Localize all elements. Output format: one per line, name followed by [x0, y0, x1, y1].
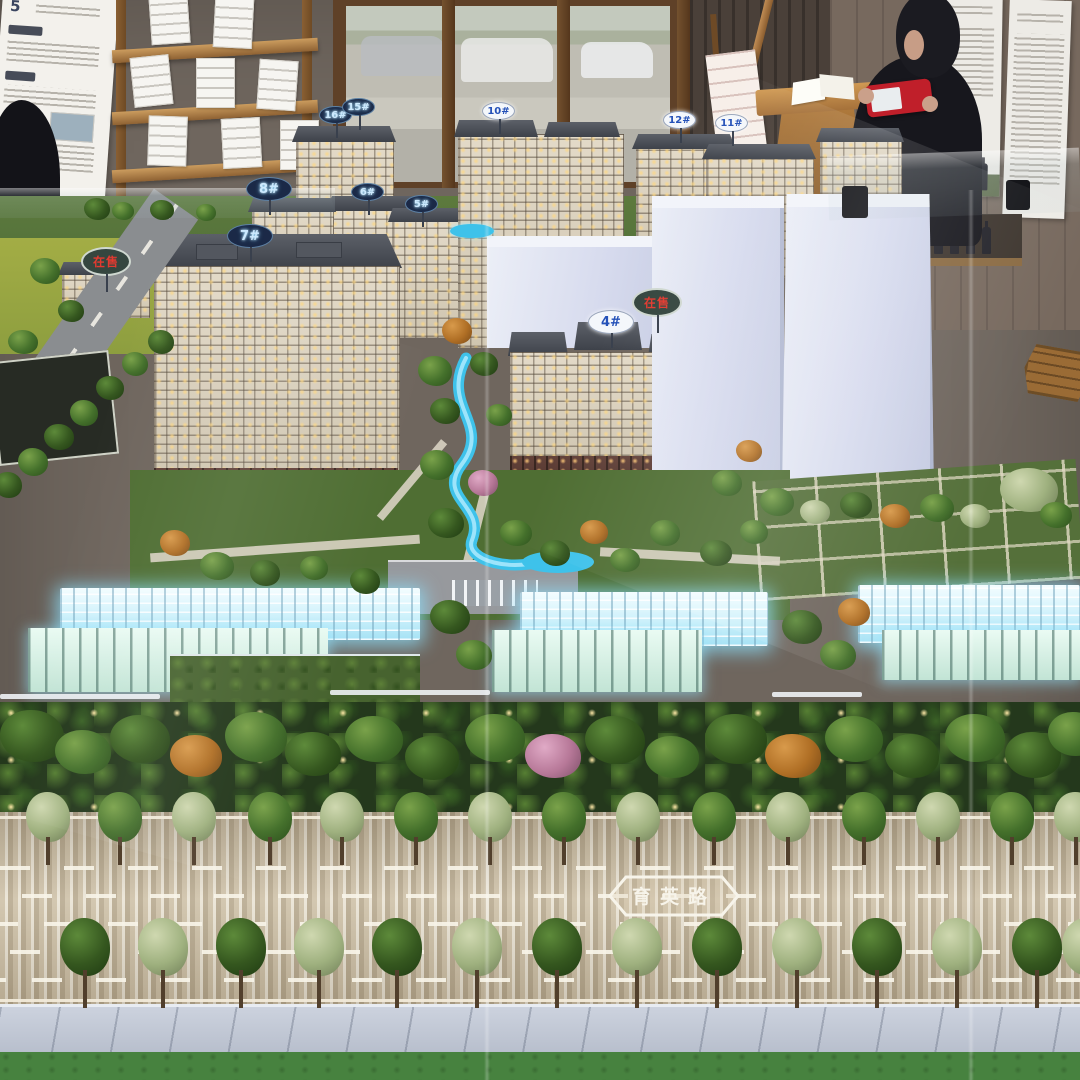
street-tree — [452, 918, 502, 976]
building-badge: 7# — [227, 224, 273, 248]
street-tree — [532, 918, 582, 976]
street-tree — [394, 792, 438, 842]
street-tree — [616, 792, 660, 842]
tree-trunk — [715, 970, 719, 1008]
badge-label: 8# — [259, 182, 279, 197]
tree — [112, 202, 134, 220]
tree — [418, 356, 452, 386]
tree — [350, 568, 380, 594]
tree — [500, 520, 532, 546]
tree — [465, 714, 525, 762]
tree — [840, 492, 872, 518]
tree-trunk — [1010, 837, 1014, 865]
street-tree — [766, 792, 810, 842]
building-badge: 6# — [351, 183, 384, 201]
tree — [200, 552, 234, 580]
tree — [430, 600, 470, 634]
tree — [838, 598, 870, 626]
tree — [122, 352, 148, 376]
tree-trunk — [862, 837, 866, 865]
tree — [1040, 502, 1072, 528]
badge-label: 4# — [601, 315, 621, 330]
tree — [110, 715, 170, 763]
tree — [44, 424, 74, 450]
on-sale-text: 在售 — [644, 294, 670, 311]
tree-trunk — [83, 970, 87, 1008]
tree-trunk — [239, 970, 243, 1008]
street-tree — [172, 792, 216, 842]
tree-trunk — [635, 970, 639, 1008]
street-tree — [612, 918, 662, 976]
street-tree — [138, 918, 188, 976]
tree — [428, 508, 464, 538]
tree — [225, 712, 287, 762]
tree — [736, 440, 762, 462]
tree-trunk — [555, 970, 559, 1008]
glass-seam — [968, 190, 974, 1080]
street-tree — [842, 792, 886, 842]
tree — [150, 200, 174, 220]
tree — [300, 556, 328, 580]
tree — [96, 376, 124, 400]
tree — [740, 520, 768, 544]
street-tree — [1062, 918, 1080, 976]
tree — [30, 258, 60, 284]
street-tree — [372, 918, 422, 976]
tree — [880, 504, 910, 528]
tree — [650, 520, 680, 546]
tree — [170, 735, 222, 777]
tree — [196, 204, 216, 221]
badge-label: 12# — [668, 115, 690, 126]
tree — [70, 400, 98, 426]
tree — [58, 300, 84, 322]
tree-trunk — [786, 837, 790, 865]
tree — [825, 716, 883, 762]
building-badge: 12# — [663, 111, 696, 129]
tree — [885, 734, 939, 778]
sales-center-model-photo: 5 — [0, 0, 1080, 1080]
street-tree — [916, 792, 960, 842]
tree — [782, 610, 822, 644]
street-tree — [26, 792, 70, 842]
badge-label: 11# — [720, 118, 742, 129]
tree-trunk — [795, 970, 799, 1008]
street-tree — [60, 918, 110, 976]
building-badge: 11# — [715, 114, 748, 132]
tree-trunk — [1074, 837, 1078, 865]
tree-trunk — [562, 837, 566, 865]
tree — [765, 734, 821, 778]
tree-trunk — [875, 970, 879, 1008]
street-tree — [248, 792, 292, 842]
glass-seam — [484, 190, 490, 1080]
tree — [540, 540, 570, 566]
street-tree — [216, 918, 266, 976]
tree-trunk — [46, 837, 50, 865]
tree — [55, 730, 111, 774]
street-tree — [692, 918, 742, 976]
tree — [610, 548, 640, 572]
badge-label: 5# — [414, 199, 429, 210]
tree-trunk — [118, 837, 122, 865]
building-badge: 8# — [246, 177, 292, 201]
tree — [468, 470, 498, 496]
tree — [405, 736, 459, 780]
tree-trunk — [414, 837, 418, 865]
tree — [820, 640, 856, 670]
building-badge: 10# — [482, 102, 515, 120]
tree-trunk — [475, 970, 479, 1008]
street-tree — [1054, 792, 1080, 842]
street-tree — [320, 792, 364, 842]
building-badge: 15# — [342, 98, 375, 116]
street-tree — [852, 918, 902, 976]
building-badge: 5# — [405, 195, 438, 213]
tree — [700, 540, 732, 566]
tree-trunk — [1035, 970, 1039, 1008]
tree — [800, 500, 830, 524]
street-tree — [932, 918, 982, 976]
street-tree — [294, 918, 344, 976]
tree — [430, 398, 460, 424]
building-badge: 4# — [588, 310, 634, 334]
tree-trunk — [636, 837, 640, 865]
tree — [585, 716, 645, 764]
tree-trunk — [161, 970, 165, 1008]
street-tree — [1012, 918, 1062, 976]
tree-trunk — [712, 837, 716, 865]
tree — [8, 330, 38, 354]
tree-trunk — [395, 970, 399, 1008]
on-sale-sign: 在售 — [81, 247, 131, 276]
tree — [760, 488, 794, 516]
tree-layer — [0, 0, 1080, 1080]
tree — [645, 736, 699, 778]
tree — [148, 330, 174, 354]
tree-trunk — [955, 970, 959, 1008]
street-tree — [772, 918, 822, 976]
tree — [345, 716, 403, 762]
street-tree — [98, 792, 142, 842]
tree — [920, 494, 954, 522]
tree — [525, 734, 581, 778]
badge-label: 6# — [360, 187, 375, 198]
on-sale-text: 在售 — [93, 253, 119, 270]
on-sale-sign: 在售 — [632, 288, 682, 317]
tree — [442, 318, 472, 344]
tree-trunk — [268, 837, 272, 865]
tree-trunk — [317, 970, 321, 1008]
street-tree — [990, 792, 1034, 842]
badge-label: 15# — [347, 102, 369, 113]
street-tree — [692, 792, 736, 842]
tree-trunk — [936, 837, 940, 865]
tree — [420, 450, 454, 480]
tree — [84, 198, 110, 220]
tree — [960, 504, 990, 528]
tree — [580, 520, 608, 544]
tree — [945, 714, 1005, 762]
tree — [705, 714, 767, 764]
badge-label: 7# — [240, 229, 260, 244]
tree-trunk — [340, 837, 344, 865]
badge-label: 10# — [487, 106, 509, 117]
tree — [250, 560, 280, 586]
tree — [285, 732, 341, 776]
tree — [160, 530, 190, 556]
tree-trunk — [192, 837, 196, 865]
street-tree — [468, 792, 512, 842]
tree — [712, 470, 742, 496]
tree — [18, 448, 48, 476]
street-tree — [542, 792, 586, 842]
tree — [0, 472, 22, 498]
